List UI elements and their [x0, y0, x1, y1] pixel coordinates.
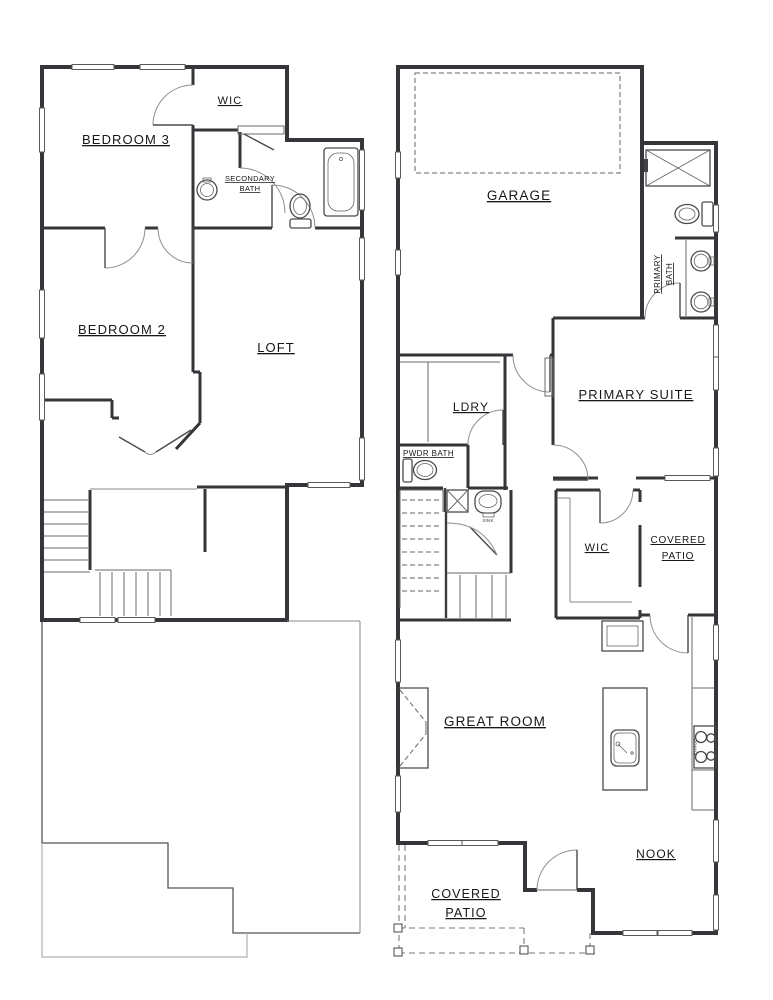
- room-label-primary-bath-1: PRIMARY: [653, 254, 662, 293]
- room-label-covered-patio-upper-2: PATIO: [662, 551, 695, 562]
- shower-icon: [644, 150, 710, 186]
- room-label-laundry: LDRY: [453, 400, 489, 414]
- room-label-covered-patio-upper-1: COVERED: [650, 535, 705, 546]
- kitchen-counter: RANGE: [692, 617, 716, 810]
- room-label-secondary-bath-2: BATH: [240, 184, 261, 193]
- bathtub-icon: [324, 148, 358, 216]
- pedestal-sink-icon: [197, 178, 217, 200]
- sink-label: SINK: [482, 518, 493, 523]
- room-label-primary-bath-2: BATH: [665, 263, 674, 285]
- toilet-icon: [675, 202, 713, 226]
- double-vanity: [686, 240, 714, 318]
- kitchen-island: [603, 688, 647, 790]
- floor-plan-drawing: BEDROOM 3 WIC SECONDARY BATH BEDROOM 2 L…: [0, 0, 773, 1000]
- room-label-bedroom-3: BEDROOM 3: [82, 132, 170, 147]
- room-label-secondary-bath-1: SECONDARY: [225, 174, 275, 183]
- primary-bath-fixtures: [545, 150, 714, 396]
- island-sink-icon: [611, 730, 639, 766]
- room-label-wic-upper: WIC: [218, 95, 243, 107]
- room-label-primary-suite: PRIMARY SUITE: [579, 387, 694, 402]
- main-doors: [447, 283, 688, 890]
- room-label-garage: GARAGE: [487, 188, 551, 203]
- floor-plan-sheet: BEDROOM 3 WIC SECONDARY BATH BEDROOM 2 L…: [0, 0, 773, 1000]
- main-floor-plan: SINK: [394, 67, 719, 956]
- upper-roof-outline: [42, 621, 360, 957]
- powder-toilet-icon: [403, 459, 437, 482]
- main-stairs: [400, 490, 511, 618]
- range-label: RANGE: [693, 738, 698, 755]
- garage-door-dashed-outline: [415, 73, 620, 173]
- mechanical-chase: [447, 490, 468, 512]
- room-label-powder-bath: PWDR BATH: [403, 449, 454, 458]
- room-label-bedroom-2: BEDROOM 2: [78, 322, 166, 337]
- upper-chamfer-wall: [176, 423, 200, 449]
- fireplace: [602, 621, 643, 651]
- room-label-covered-patio-lower-1: COVERED: [431, 887, 501, 901]
- room-label-nook: NOOK: [636, 847, 676, 861]
- toilet-icon: [290, 194, 311, 228]
- media-niche: [398, 688, 428, 768]
- upper-stairs: [44, 489, 197, 616]
- upper-windows: [40, 65, 365, 623]
- room-label-wic-main: WIC: [585, 542, 610, 554]
- room-label-covered-patio-lower-2: PATIO: [445, 906, 486, 920]
- room-label-loft: LOFT: [257, 340, 295, 355]
- upper-floor-plan: BEDROOM 3 WIC SECONDARY BATH BEDROOM 2 L…: [40, 65, 365, 958]
- main-small-walls: [445, 488, 446, 618]
- hall-sink-icon: [475, 491, 501, 517]
- room-label-great-room: GREAT ROOM: [444, 714, 546, 729]
- range-icon: RANGE: [693, 726, 717, 768]
